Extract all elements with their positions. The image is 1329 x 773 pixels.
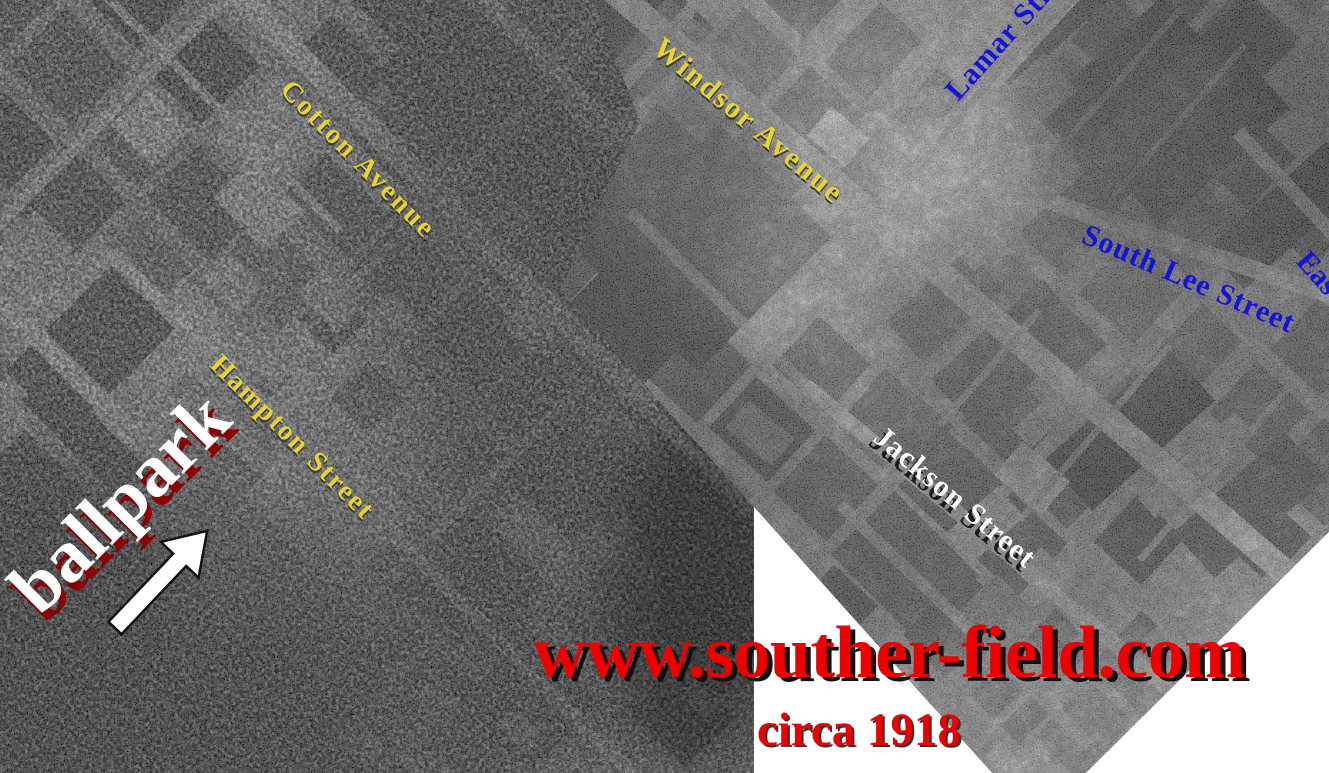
svg-text:circa 1918: circa 1918 — [757, 704, 961, 756]
svg-text:www.souther-field.com: www.souther-field.com — [533, 612, 1245, 694]
